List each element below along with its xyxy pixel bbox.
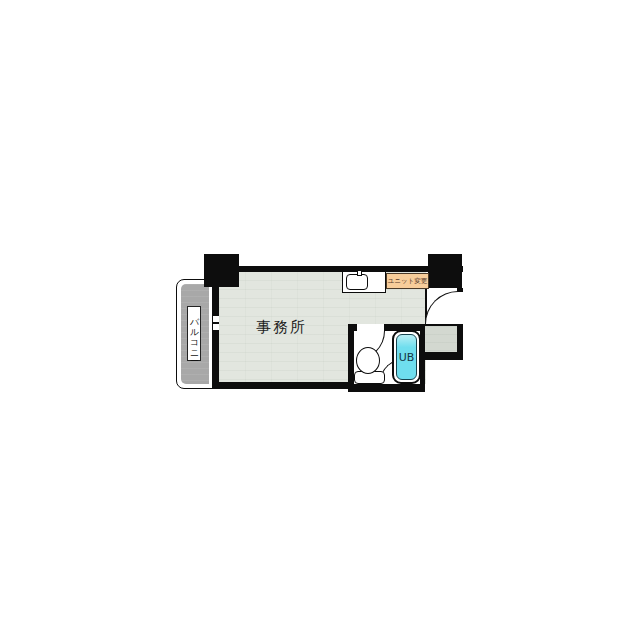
entry-floor [425,324,457,352]
unit-bath-label: UB [399,351,415,364]
kitchen-faucet-icon [357,270,362,276]
floorplan-page: { "floorplan": { "room_label": "事務所", "b… [0,0,640,640]
pillar-top-right [428,254,462,288]
entrance-door-swing-icon [425,291,458,324]
unit-note-badge: ユニット変更 [386,273,429,289]
balcony-label: バルコニー [187,306,201,361]
balcony-window [212,322,219,324]
left-wall-upper [212,282,219,316]
bathtub-basin: UB [396,334,417,380]
left-wall-lower [212,330,219,387]
entry-bottom-wall [425,352,463,360]
office-room-label: 事務所 [256,318,307,337]
toilet-bowl-icon [356,347,380,374]
pillar-top-left [204,254,239,287]
kitchen-sink-icon [346,274,368,290]
bottom-wall [212,382,353,389]
